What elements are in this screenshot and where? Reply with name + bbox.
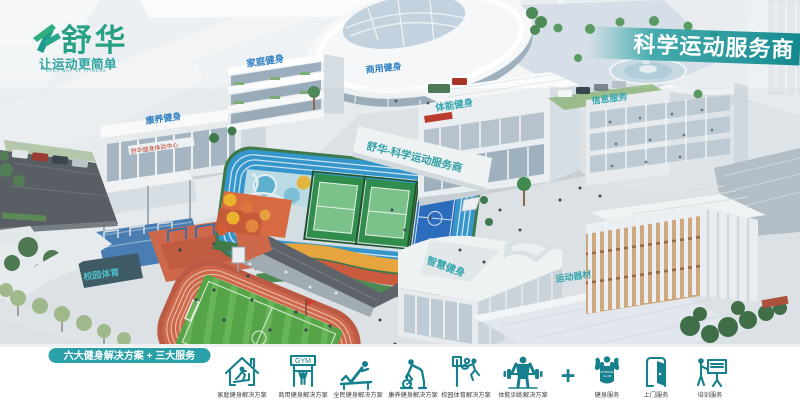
svg-text:健身服务: 健身服务 <box>595 391 620 399</box>
svg-text:GYM: GYM <box>295 358 311 365</box>
svg-text:商用健身解决方案: 商用健身解决方案 <box>278 391 328 399</box>
svg-text:康养健身解决方案: 康养健身解决方案 <box>388 391 438 399</box>
svg-text:+: + <box>561 362 576 390</box>
svg-text:校园体育解决方案: 校园体育解决方案 <box>441 391 491 399</box>
svg-text:舒华: 舒华 <box>61 23 128 58</box>
svg-text:家庭健身解决方案: 家庭健身解决方案 <box>217 391 267 399</box>
svg-text:六大健身解决方案 + 三大服务: 六大健身解决方案 + 三大服务 <box>64 349 196 362</box>
svg-text:EASY WAY OF FITNESS: EASY WAY OF FITNESS <box>46 68 106 73</box>
svg-text:全民健身解决方案: 全民健身解决方案 <box>333 391 383 399</box>
svg-text:CLUB: CLUB <box>603 374 611 378</box>
svg-text:培训服务: 培训服务 <box>698 391 723 399</box>
svg-text:上门服务: 上门服务 <box>644 391 669 399</box>
svg-text:体能训练解决方案: 体能训练解决方案 <box>498 391 548 399</box>
